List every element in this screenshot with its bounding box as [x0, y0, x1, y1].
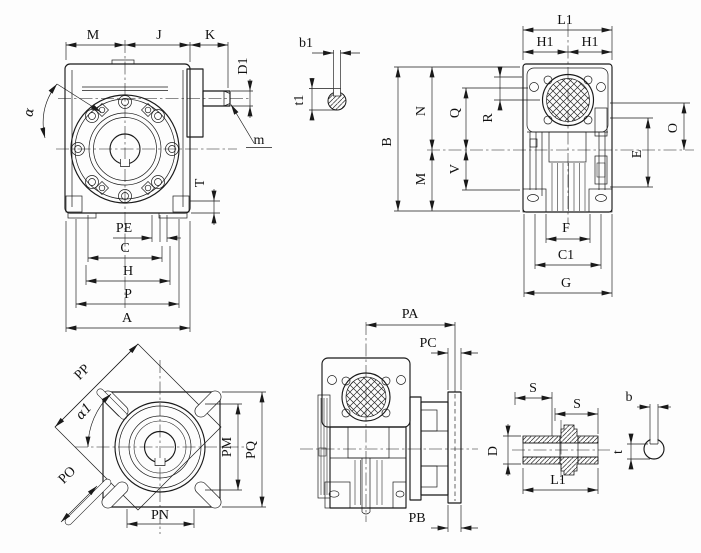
dim-S-left: S [515, 381, 552, 436]
hollow-shaft-detail: S S D L1 [486, 381, 610, 494]
dim-S-right: S [555, 397, 598, 434]
dim-label-PB: PB [408, 511, 425, 526]
dim-label-PQ: PQ [244, 441, 259, 459]
dim-label-PO: PO [56, 464, 79, 487]
dim-label-D: D [486, 446, 501, 456]
dim-label-M: M [87, 28, 100, 43]
dim-label-T: T [193, 178, 208, 187]
dim-label-H1-right: H1 [581, 35, 598, 50]
dim-label-PE: PE [116, 221, 132, 236]
dim-label-PA: PA [402, 307, 420, 322]
dim-T: T [190, 178, 220, 225]
dim-label-S1: S [529, 381, 537, 396]
dim-B-N-M: B N M [380, 67, 520, 211]
dim-label-M: M [414, 172, 429, 185]
technical-drawing: M J K D1 m α T [0, 0, 701, 553]
dim-label-t: t [611, 450, 626, 454]
dim-Q-V: Q V [448, 88, 528, 190]
dim-label-B: B [380, 137, 395, 146]
dim-PE-C-H-P-A: PE C H P A [66, 215, 190, 332]
dim-label-C1: C1 [558, 248, 574, 263]
output-flange-view: PP α1 PO PM PQ PN [55, 344, 266, 534]
dim-label-G: G [561, 276, 571, 291]
dim-label-O: O [666, 123, 681, 133]
dim-label-D1: D1 [236, 57, 251, 74]
dim-label-P: P [124, 287, 132, 302]
dim-label-L1: L1 [557, 13, 573, 28]
front-view: M J K D1 m α T [21, 28, 272, 332]
dim-label-V: V [448, 164, 463, 174]
dim-label-J: J [156, 28, 162, 43]
dim-label-b1: b1 [299, 36, 313, 51]
dim-label-t1: t1 [292, 95, 307, 106]
output-key-detail: b t [611, 390, 671, 469]
dim-b: b [626, 390, 672, 407]
dim-label-b: b [626, 390, 633, 405]
output-flange-disc [448, 392, 461, 503]
dim-label-PC: PC [419, 336, 436, 351]
dim-label-L1-shaft: L1 [550, 473, 566, 488]
dim-alpha: α [21, 84, 101, 138]
dim-H1-H1: H1 H1 [523, 35, 612, 52]
dim-label-A: A [122, 311, 133, 326]
dim-PB: PB [408, 505, 478, 532]
flange-keyway [155, 458, 165, 466]
drawing-sheet: M J K D1 m α T [0, 0, 701, 553]
input-keyway [334, 89, 341, 97]
input-key-detail: b1 t1 [292, 36, 360, 120]
dim-label-C: C [120, 241, 129, 256]
dim-F-C1-G: F C1 G [524, 214, 612, 297]
dim-M-J-K: M J K [66, 28, 228, 88]
dim-label-PM: PM [220, 436, 235, 457]
dim-label-PN: PN [151, 508, 169, 523]
dim-label-alpha: α [21, 107, 37, 118]
dim-L1-shaft: L1 [523, 468, 598, 494]
dim-label-m: m [254, 133, 265, 148]
body-block [330, 427, 406, 508]
dim-D1: D1 [231, 57, 253, 118]
dim-O-E: O E [610, 103, 690, 187]
dim-label-N: N [414, 106, 429, 116]
input-end-view: L1 H1 H1 B N M Q V R [380, 13, 694, 297]
dim-label-R: R [481, 113, 496, 123]
dim-m: m [231, 105, 272, 149]
dim-b1: b1 [299, 36, 360, 53]
dim-label-alpha1: α1 [73, 400, 96, 423]
dim-R: R [481, 68, 540, 123]
dim-PC: PC [419, 336, 478, 390]
output-cylinder [421, 402, 448, 495]
gearbox-body-outline [65, 64, 190, 213]
dim-label-Q: Q [448, 108, 463, 118]
dim-label-E: E [630, 150, 645, 159]
dim-label-S2: S [573, 397, 581, 412]
shaft-collar-top [560, 425, 578, 443]
dim-label-F: F [562, 221, 570, 236]
dim-label-H: H [123, 264, 133, 279]
output-flange-side-view: PA PC PB [300, 307, 478, 532]
dim-label-K: K [205, 28, 215, 43]
dim-label-PP: PP [72, 362, 94, 384]
keyway-notch [121, 159, 130, 167]
dim-label-H1-left: H1 [536, 35, 553, 50]
input-shaft-housing [187, 69, 203, 137]
